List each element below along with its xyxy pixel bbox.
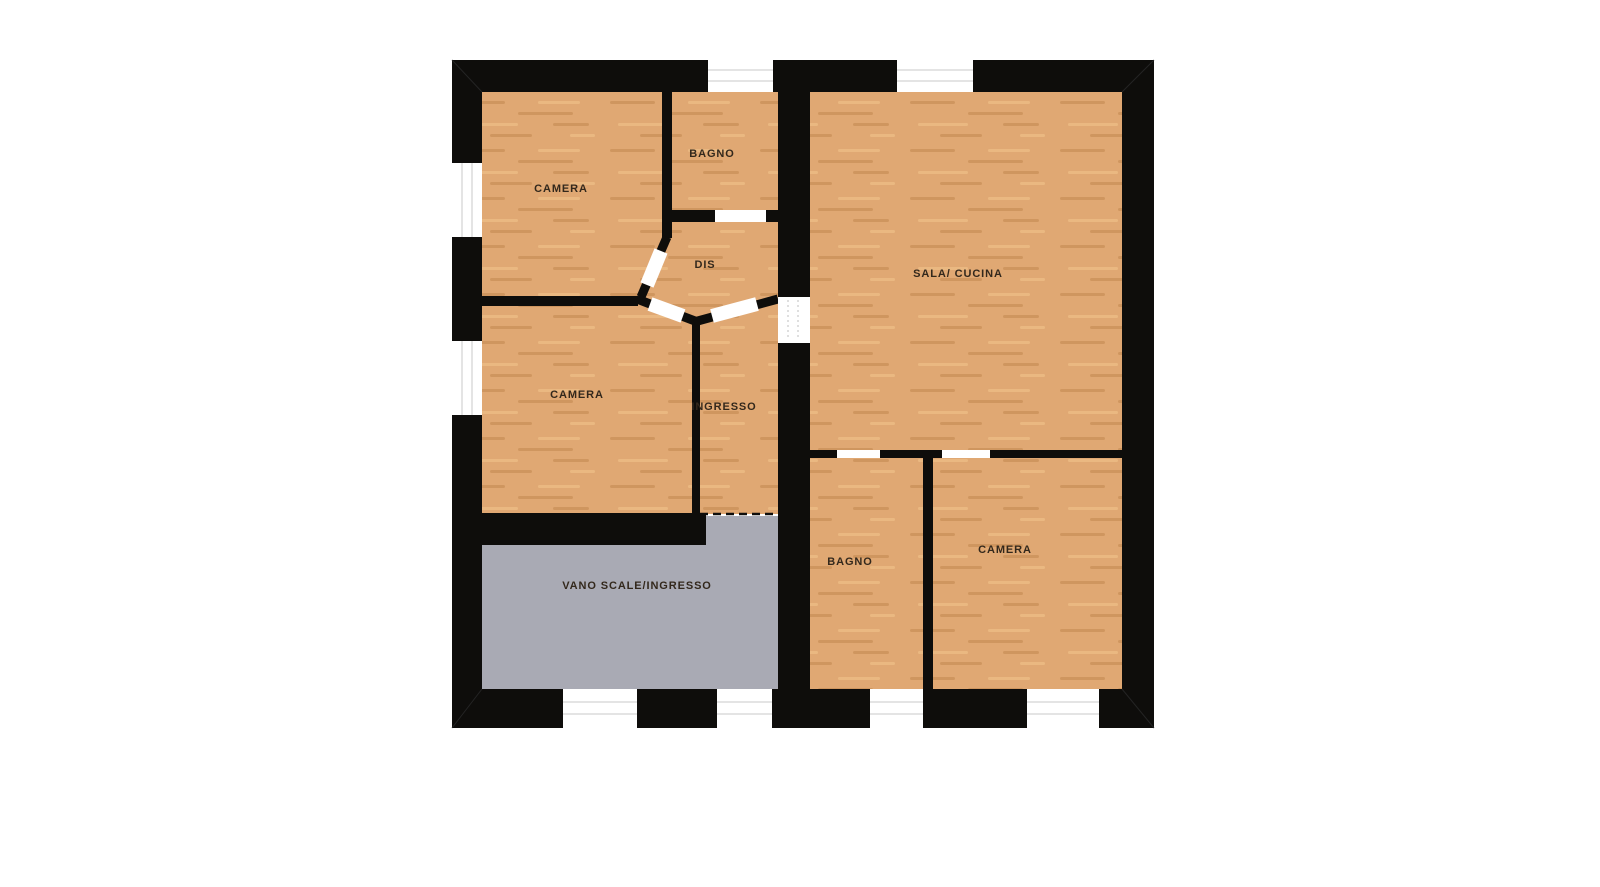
room-label-vano-scale-ingresso: VANO SCALE/INGRESSO [562,580,712,592]
room-label-bagno-top: BAGNO [689,148,734,160]
window-bottom-1 [563,689,637,728]
room-label-camera-se: CAMERA [978,544,1032,556]
room-label-camera-nw: CAMERA [534,183,588,195]
door-bagno-top [715,210,766,222]
wall-bagno-s-camera-se [923,458,933,689]
wall-central-spine [778,92,810,689]
room-floor-camera-se [933,450,1122,689]
room-label-ingresso: INGRESSO [691,401,756,413]
window-bottom-3 [870,689,923,728]
window-top-1 [708,60,773,92]
wall-camera-nw-south [482,296,638,306]
window-top-2 [897,60,973,92]
opening-ingresso-sala [778,297,810,343]
window-left-2 [452,341,482,415]
room-label-camera-w: CAMERA [550,389,604,401]
room-floor-bagno-s [810,450,923,689]
room-label-dis: DIS [694,259,715,271]
room-label-bagno-s: BAGNO [827,556,872,568]
door-bagno-s [837,450,880,458]
outer-wall-top [452,60,1154,92]
window-bottom-2 [717,689,772,728]
wall-camera-w-ingresso [692,318,700,513]
room-floor-camera-w [482,297,700,513]
room-label-sala-cucina: SALA/ CUCINA [913,268,1003,280]
floor-plan-page: CAMERA BAGNO DIS SALA/ CUCINA CAMERA ING… [0,0,1600,887]
floor-plan: CAMERA BAGNO DIS SALA/ CUCINA CAMERA ING… [0,0,1600,887]
wall-camera-w-south [482,513,706,545]
window-left-1 [452,163,482,237]
window-bottom-4 [1027,689,1099,728]
door-camera-se [942,450,990,458]
outer-wall-right [1122,60,1154,728]
